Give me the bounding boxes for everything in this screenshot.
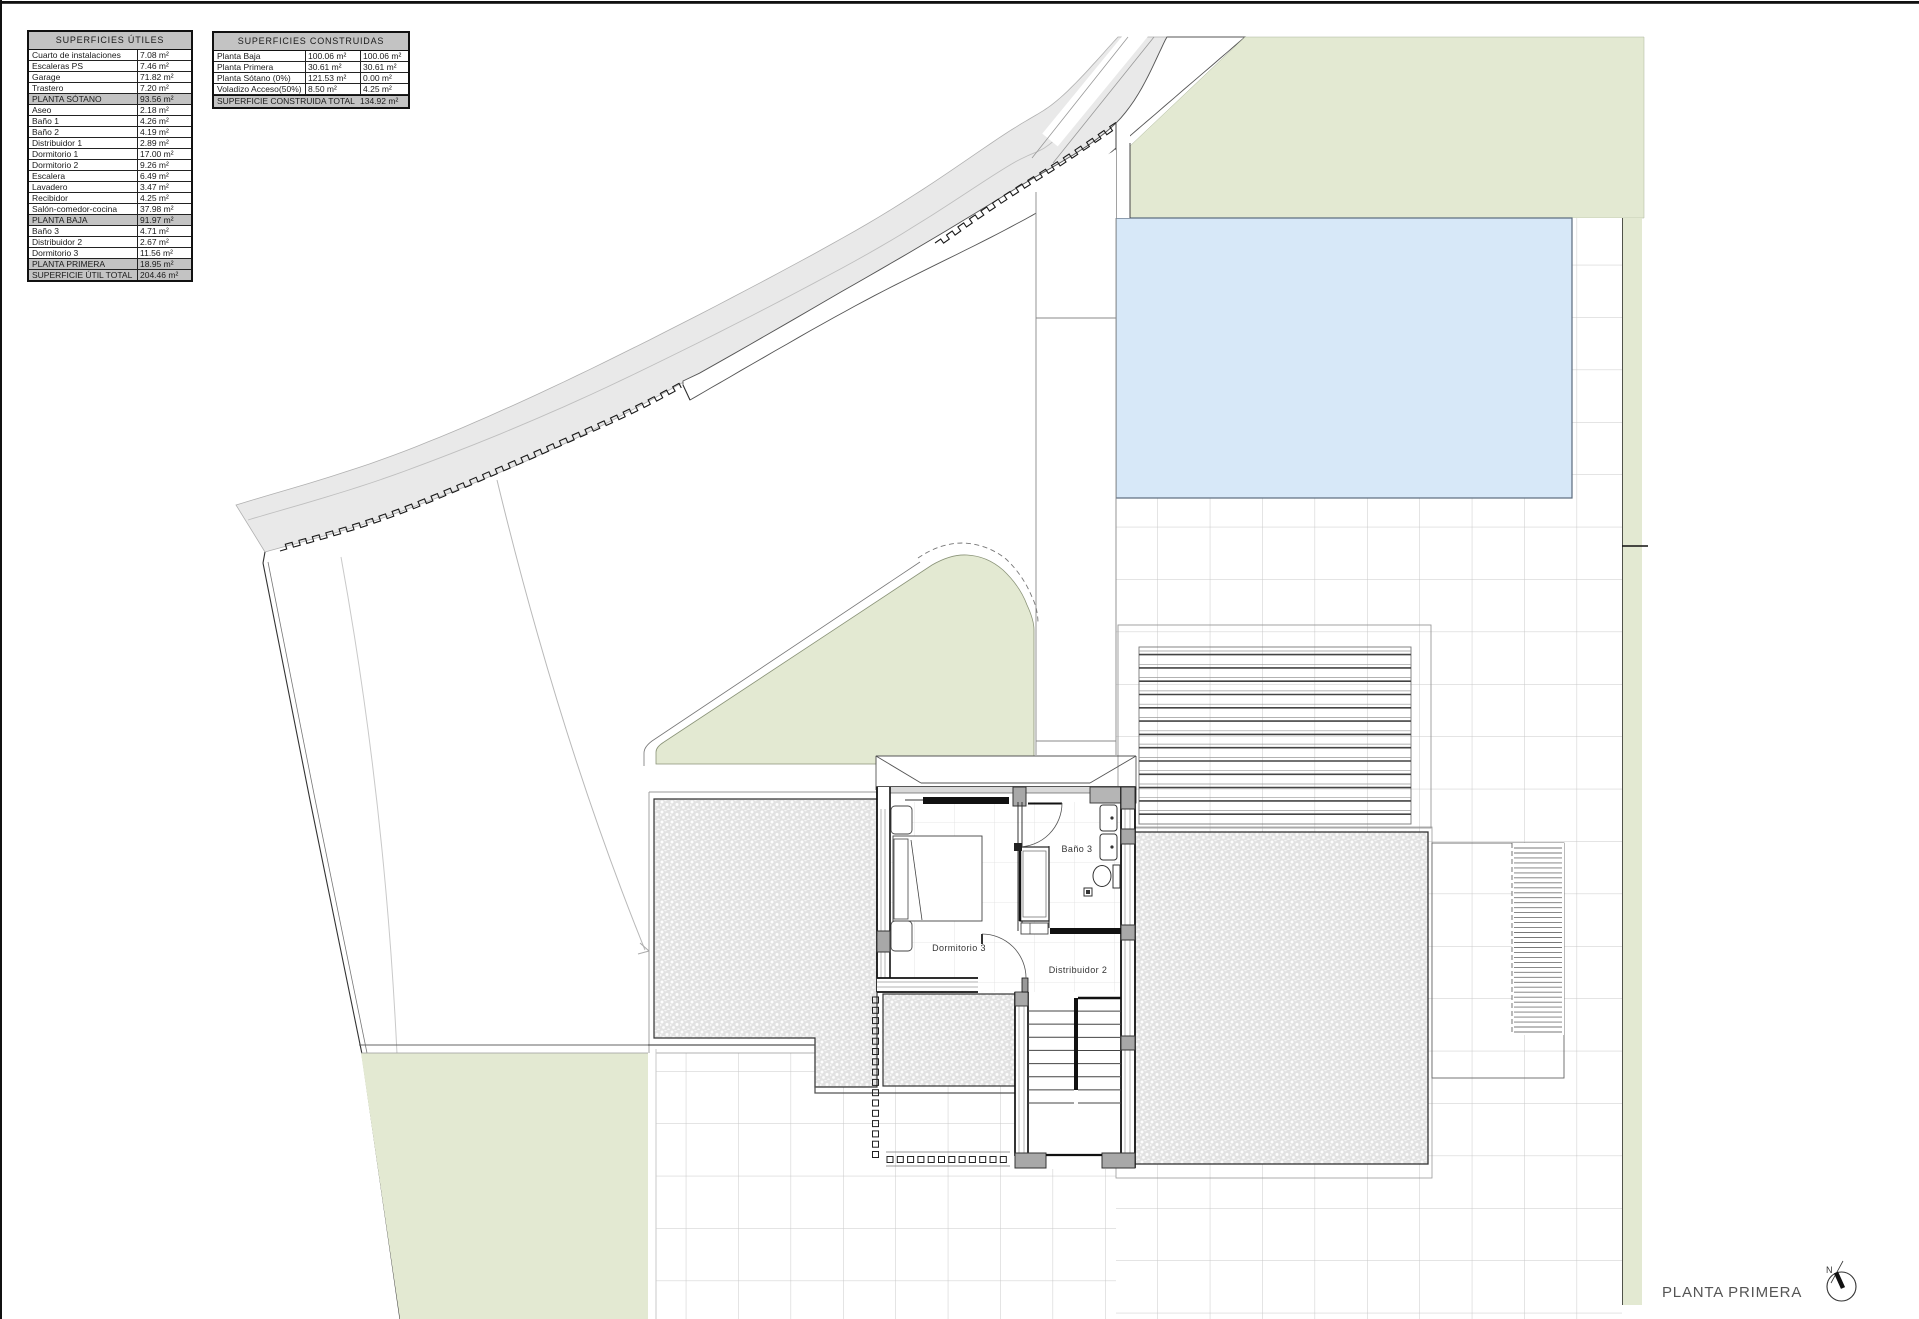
- svg-text:Distribuidor 2: Distribuidor 2: [1049, 965, 1108, 975]
- svg-text:Baño 3: Baño 3: [1062, 844, 1093, 854]
- svg-text:N: N: [1826, 1265, 1833, 1275]
- svg-text:PLANTA PRIMERA: PLANTA PRIMERA: [1662, 1284, 1802, 1301]
- svg-text:Dormitorio 3: Dormitorio 3: [932, 943, 986, 953]
